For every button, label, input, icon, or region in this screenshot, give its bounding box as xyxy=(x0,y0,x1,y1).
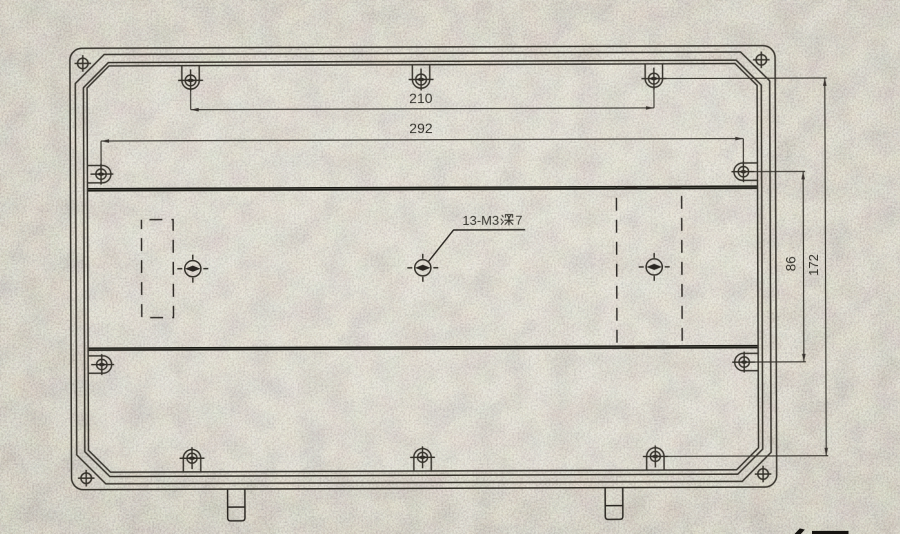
svg-text:86: 86 xyxy=(783,256,798,271)
svg-text:210: 210 xyxy=(409,90,433,106)
svg-text:13-M3: 13-M3 xyxy=(462,213,499,228)
svg-text:292: 292 xyxy=(409,120,433,136)
svg-text:172: 172 xyxy=(806,254,821,276)
svg-text:7: 7 xyxy=(515,213,522,228)
